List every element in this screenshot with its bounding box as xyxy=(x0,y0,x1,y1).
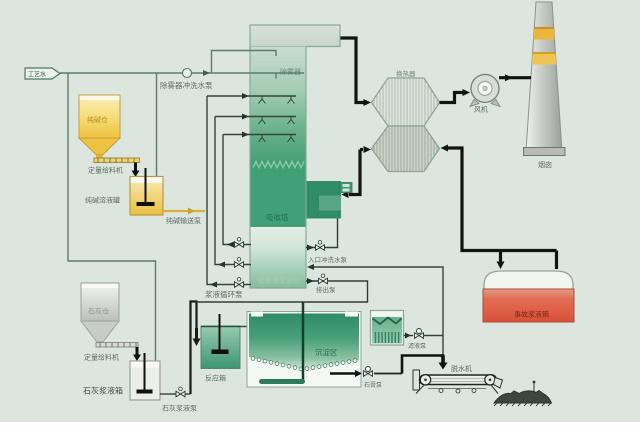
svg-text:石膏泵: 石膏泵 xyxy=(364,381,382,389)
svg-text:吸收塔: 吸收塔 xyxy=(266,212,289,222)
svg-text:脱水机: 脱水机 xyxy=(451,364,472,373)
svg-text:换热器: 换热器 xyxy=(396,69,416,78)
svg-text:石灰仓: 石灰仓 xyxy=(88,307,109,316)
svg-text:排出泵: 排出泵 xyxy=(316,285,336,294)
svg-text:纯碱输送泵: 纯碱输送泵 xyxy=(166,216,201,225)
svg-text:浆液循环泵: 浆液循环泵 xyxy=(205,289,243,299)
svg-text:除雾器冲洗水泵: 除雾器冲洗水泵 xyxy=(160,80,213,90)
svg-text:纯碱仓: 纯碱仓 xyxy=(87,115,108,124)
svg-text:纯碱溶液罐: 纯碱溶液罐 xyxy=(85,196,120,205)
svg-text:石灰浆液箱: 石灰浆液箱 xyxy=(83,386,123,396)
svg-text:滤液泵: 滤液泵 xyxy=(408,342,426,350)
svg-text:定量给料机: 定量给料机 xyxy=(88,166,123,175)
svg-text:事故浆液箱: 事故浆液箱 xyxy=(514,310,549,319)
svg-text:工艺水: 工艺水 xyxy=(28,71,46,79)
svg-text:定量给料机: 定量给料机 xyxy=(84,353,119,362)
svg-text:入口冲洗水泵: 入口冲洗水泵 xyxy=(308,255,348,264)
svg-text:除雾器: 除雾器 xyxy=(280,67,301,76)
svg-text:风机: 风机 xyxy=(474,105,488,114)
svg-text:烟囱: 烟囱 xyxy=(538,160,552,169)
svg-text:石灰浆液泵: 石灰浆液泵 xyxy=(162,404,197,413)
svg-text:吸收塔浆液池: 吸收塔浆液池 xyxy=(258,276,300,285)
svg-text:反应箱: 反应箱 xyxy=(205,374,226,383)
svg-text:沉淀区: 沉淀区 xyxy=(315,347,338,357)
